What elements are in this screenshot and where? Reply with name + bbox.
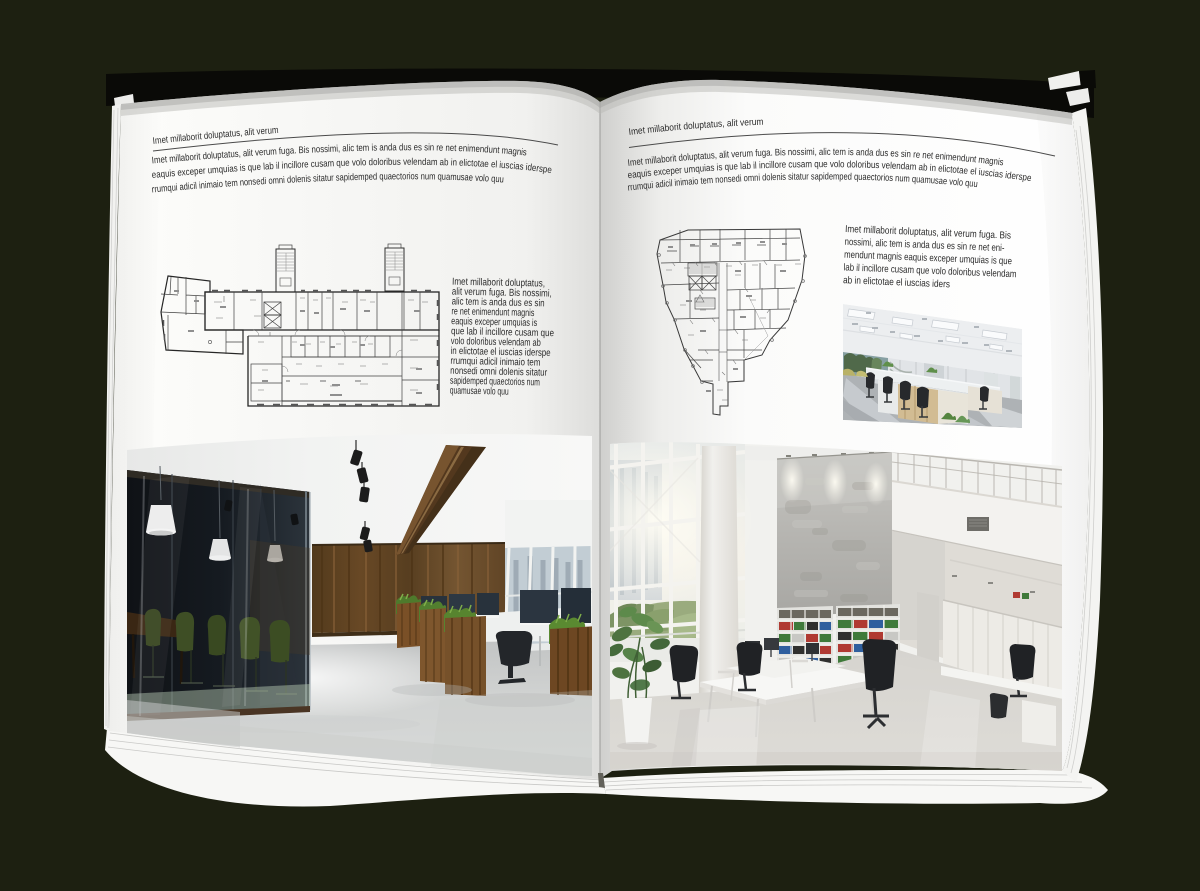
svg-text:quamusae volo quu: quamusae volo quu <box>450 385 509 397</box>
